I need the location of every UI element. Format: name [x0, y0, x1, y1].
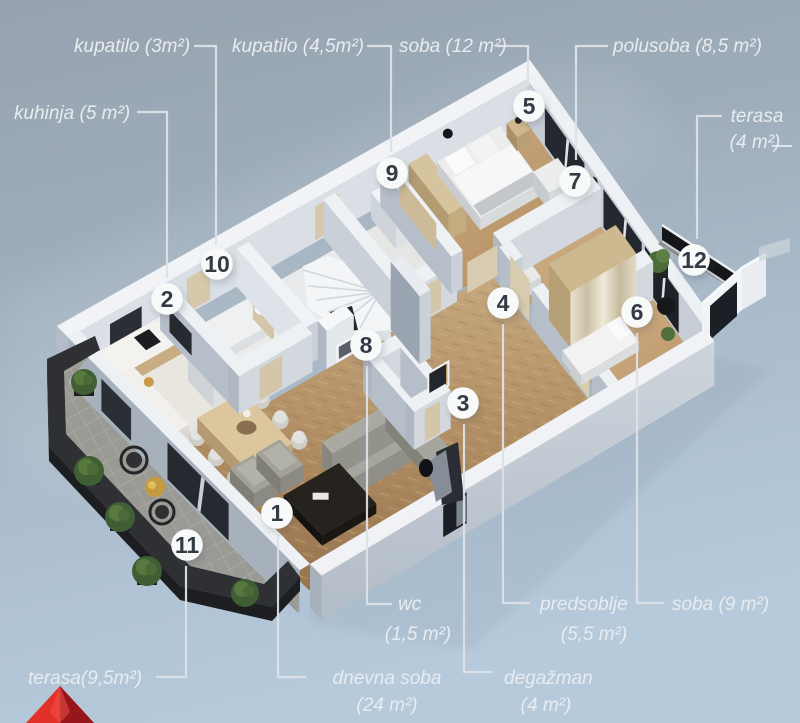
svg-text:5: 5: [523, 93, 536, 119]
svg-text:(4 m²): (4 m²): [730, 132, 781, 153]
svg-text:(24 m²): (24 m²): [356, 695, 417, 716]
svg-text:(5,5 m²): (5,5 m²): [561, 624, 628, 645]
svg-text:(1,5 m²): (1,5 m²): [385, 624, 452, 645]
svg-text:9: 9: [386, 160, 399, 186]
svg-text:3: 3: [457, 390, 470, 416]
svg-text:1: 1: [271, 500, 284, 526]
svg-text:soba (9 m²): soba (9 m²): [672, 594, 769, 615]
svg-text:polusoba (8,5 m²): polusoba (8,5 m²): [612, 36, 762, 57]
svg-text:kupatilo (3m²): kupatilo (3m²): [74, 36, 190, 57]
svg-text:2: 2: [161, 286, 174, 312]
svg-text:4: 4: [497, 290, 510, 316]
svg-text:dnevna soba: dnevna soba: [333, 668, 442, 689]
svg-text:7: 7: [569, 168, 582, 194]
svg-text:wc: wc: [398, 594, 422, 615]
svg-text:kuhinja (5 m²): kuhinja (5 m²): [14, 103, 130, 124]
svg-text:8: 8: [360, 332, 373, 358]
svg-text:terasa: terasa: [731, 106, 784, 127]
svg-text:6: 6: [631, 299, 644, 325]
svg-text:kupatilo (4,5m²): kupatilo (4,5m²): [232, 36, 364, 57]
svg-text:12: 12: [681, 247, 707, 273]
svg-text:11: 11: [175, 532, 200, 558]
svg-text:soba (12 m²): soba (12 m²): [399, 36, 507, 57]
svg-text:10: 10: [204, 251, 230, 277]
svg-text:(4 m²): (4 m²): [521, 695, 572, 716]
svg-text:predsoblje: predsoblje: [539, 594, 628, 615]
svg-text:terasa(9,5m²): terasa(9,5m²): [28, 668, 142, 689]
svg-text:degažman: degažman: [504, 668, 593, 689]
